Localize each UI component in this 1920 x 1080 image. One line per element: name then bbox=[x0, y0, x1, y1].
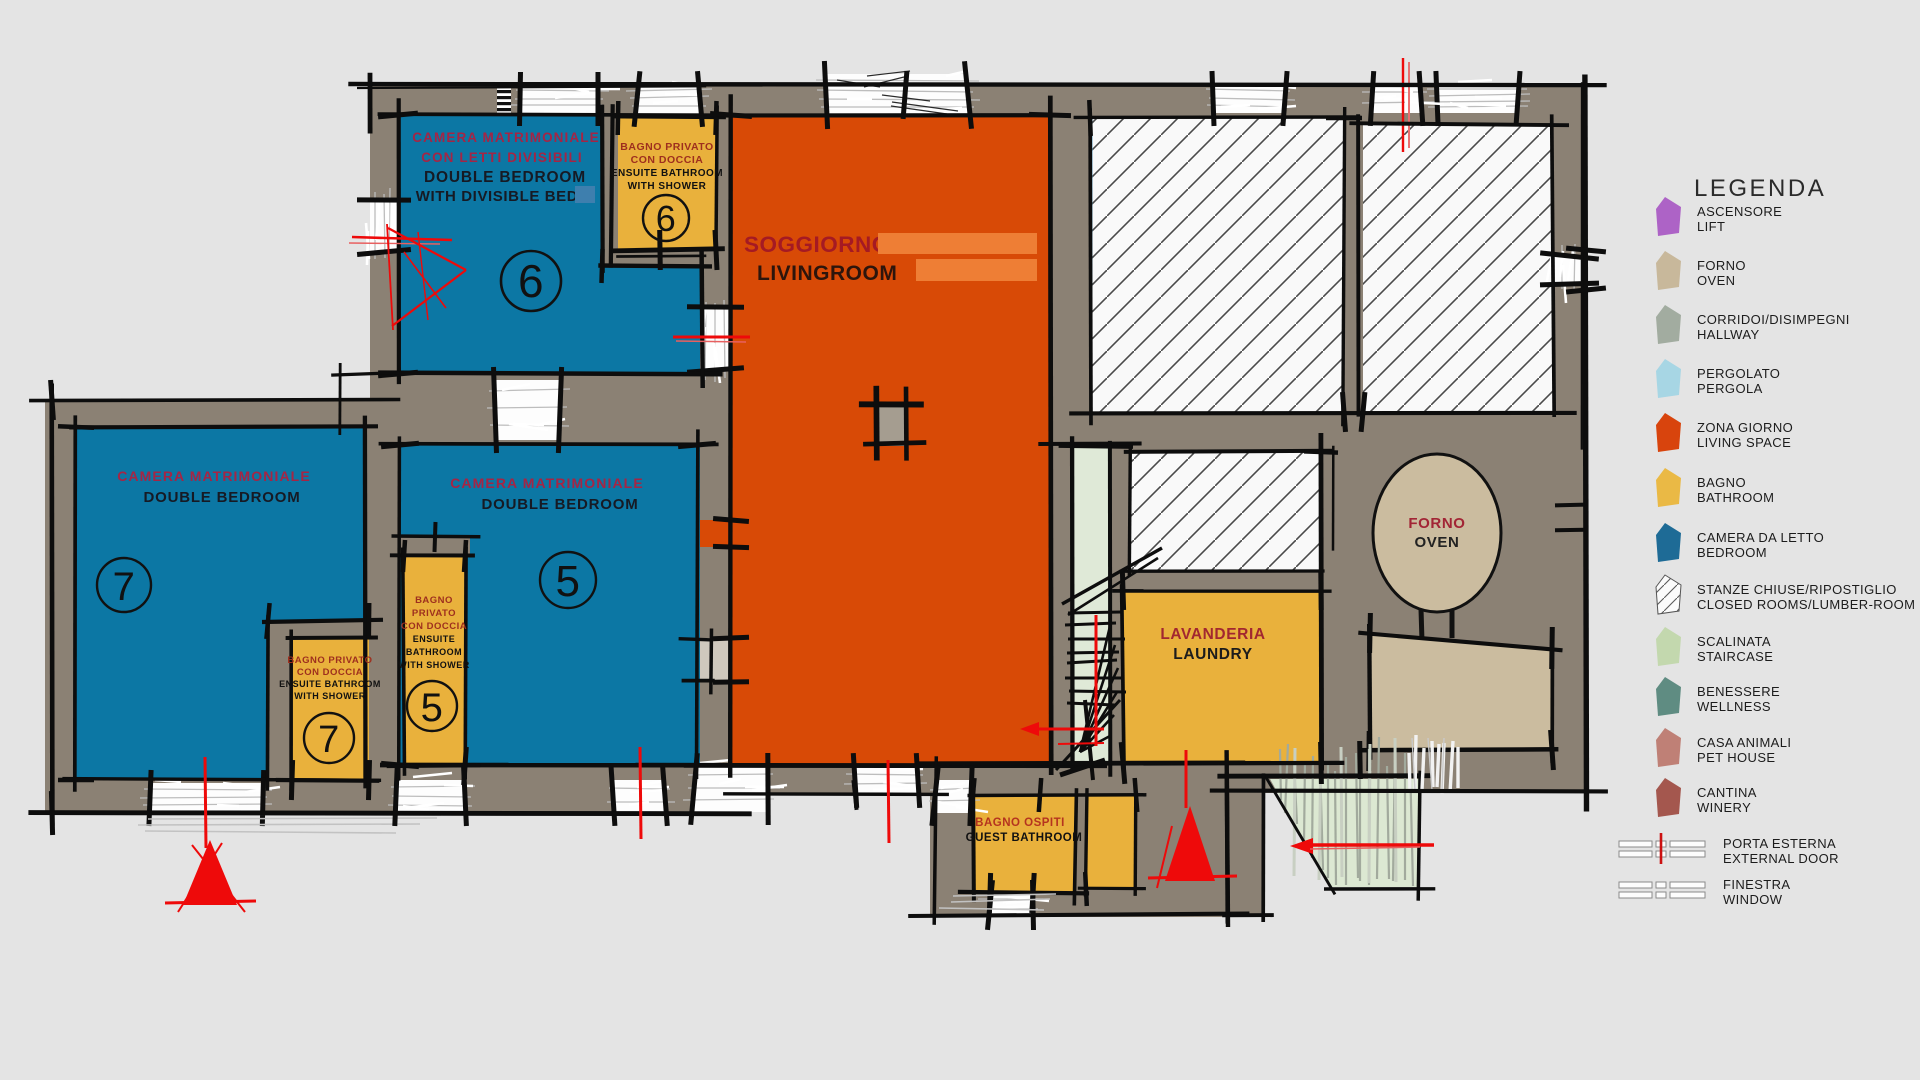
svg-text:LAUNDRY: LAUNDRY bbox=[1173, 646, 1252, 663]
svg-text:CAMERA MATRIMONIALE: CAMERA MATRIMONIALE bbox=[117, 468, 311, 484]
svg-text:PRIVATO: PRIVATO bbox=[412, 608, 456, 619]
svg-text:CON DOCCIA: CON DOCCIA bbox=[401, 621, 467, 632]
svg-text:7: 7 bbox=[113, 565, 136, 609]
svg-text:SCALINATA: SCALINATA bbox=[1697, 634, 1771, 649]
svg-text:CANTINA: CANTINA bbox=[1697, 785, 1757, 800]
svg-text:5: 5 bbox=[421, 686, 444, 730]
svg-text:ASCENSORE: ASCENSORE bbox=[1697, 204, 1782, 219]
svg-text:CON DOCCIA: CON DOCCIA bbox=[297, 667, 363, 678]
svg-text:CASA ANIMALI: CASA ANIMALI bbox=[1697, 735, 1791, 750]
svg-text:PERGOLA: PERGOLA bbox=[1697, 381, 1763, 396]
svg-text:BENESSERE: BENESSERE bbox=[1697, 684, 1780, 699]
svg-text:SOGGIORNO: SOGGIORNO bbox=[744, 232, 890, 257]
svg-text:FORNO: FORNO bbox=[1408, 515, 1465, 532]
svg-text:EXTERNAL DOOR: EXTERNAL DOOR bbox=[1723, 851, 1839, 866]
svg-text:OVEN: OVEN bbox=[1697, 273, 1735, 288]
svg-text:WITH SHOWER: WITH SHOWER bbox=[294, 691, 366, 701]
svg-text:PORTA ESTERNA: PORTA ESTERNA bbox=[1723, 836, 1836, 851]
svg-text:CLOSED ROOMS/LUMBER-ROOM: CLOSED ROOMS/LUMBER-ROOM bbox=[1697, 597, 1915, 612]
svg-text:WELLNESS: WELLNESS bbox=[1697, 699, 1771, 714]
svg-text:DOUBLE BEDROOM: DOUBLE BEDROOM bbox=[424, 169, 586, 186]
svg-text:BEDROOM: BEDROOM bbox=[1697, 545, 1767, 560]
svg-text:CAMERA DA LETTO: CAMERA DA LETTO bbox=[1697, 530, 1824, 545]
svg-text:WITH DIVISIBLE BED: WITH DIVISIBLE BED bbox=[416, 188, 578, 205]
svg-text:LIVING SPACE: LIVING SPACE bbox=[1697, 435, 1791, 450]
svg-text:BAGNO PRIVATO: BAGNO PRIVATO bbox=[620, 141, 713, 153]
svg-text:ENSUITE BATHROOM: ENSUITE BATHROOM bbox=[611, 168, 723, 179]
svg-text:6: 6 bbox=[656, 198, 677, 239]
svg-text:HALLWAY: HALLWAY bbox=[1697, 327, 1760, 342]
svg-text:STAIRCASE: STAIRCASE bbox=[1697, 649, 1773, 664]
svg-text:WINDOW: WINDOW bbox=[1723, 892, 1783, 907]
svg-text:BAGNO OSPITI: BAGNO OSPITI bbox=[975, 817, 1065, 829]
svg-text:WINERY: WINERY bbox=[1697, 800, 1751, 815]
svg-text:FORNO: FORNO bbox=[1697, 258, 1746, 273]
svg-text:LIFT: LIFT bbox=[1697, 219, 1725, 234]
svg-text:ZONA GIORNO: ZONA GIORNO bbox=[1697, 420, 1793, 435]
svg-text:BATHROOM: BATHROOM bbox=[406, 647, 462, 657]
svg-text:OVEN: OVEN bbox=[1415, 534, 1460, 551]
svg-text:BATHROOM: BATHROOM bbox=[1697, 490, 1774, 505]
svg-text:DOUBLE BEDROOM: DOUBLE BEDROOM bbox=[481, 496, 638, 513]
svg-text:CON DOCCIA: CON DOCCIA bbox=[631, 154, 704, 166]
svg-text:ENSUITE BATHROOM: ENSUITE BATHROOM bbox=[279, 679, 381, 689]
svg-text:PERGOLATO: PERGOLATO bbox=[1697, 366, 1780, 381]
svg-text:BAGNO PRIVATO: BAGNO PRIVATO bbox=[287, 655, 372, 666]
svg-text:STANZE CHIUSE/RIPOSTIGLIO: STANZE CHIUSE/RIPOSTIGLIO bbox=[1697, 582, 1897, 597]
svg-text:GUEST BATHROOM: GUEST BATHROOM bbox=[966, 832, 1083, 844]
svg-text:6: 6 bbox=[518, 255, 544, 307]
svg-text:PET HOUSE: PET HOUSE bbox=[1697, 750, 1776, 765]
svg-text:CAMERA MATRIMONIALE: CAMERA MATRIMONIALE bbox=[412, 130, 599, 145]
svg-text:CON LETTI DIVISIBILI: CON LETTI DIVISIBILI bbox=[421, 150, 583, 165]
svg-text:FINESTRA: FINESTRA bbox=[1723, 877, 1790, 892]
svg-text:CAMERA MATRIMONIALE: CAMERA MATRIMONIALE bbox=[450, 475, 644, 491]
svg-text:BAGNO: BAGNO bbox=[415, 595, 453, 606]
svg-text:7: 7 bbox=[318, 719, 340, 761]
svg-text:WITH SHOWER: WITH SHOWER bbox=[398, 660, 470, 670]
svg-text:5: 5 bbox=[556, 557, 581, 606]
svg-text:CORRIDOI/DISIMPEGNI: CORRIDOI/DISIMPEGNI bbox=[1697, 312, 1850, 327]
svg-text:LIVINGROOM: LIVINGROOM bbox=[757, 262, 897, 285]
svg-text:DOUBLE BEDROOM: DOUBLE BEDROOM bbox=[143, 489, 300, 506]
svg-text:LEGENDA: LEGENDA bbox=[1694, 175, 1826, 202]
svg-text:WITH SHOWER: WITH SHOWER bbox=[628, 181, 707, 192]
svg-text:ENSUITE: ENSUITE bbox=[413, 634, 456, 644]
svg-text:BAGNO: BAGNO bbox=[1697, 475, 1746, 490]
svg-text:LAVANDERIA: LAVANDERIA bbox=[1160, 626, 1265, 643]
